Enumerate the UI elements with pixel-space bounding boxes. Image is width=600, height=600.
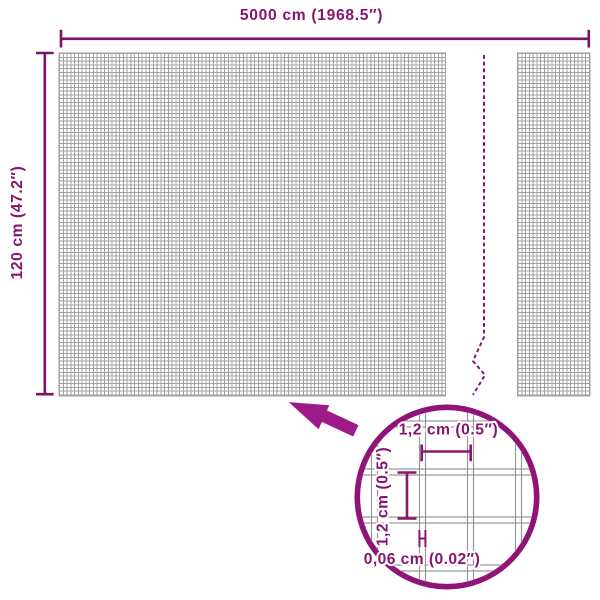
svg-text:5000 cm (1968.5″): 5000 cm (1968.5″) — [240, 7, 383, 24]
svg-text:0,06 cm (0.02″): 0,06 cm (0.02″) — [364, 551, 481, 568]
svg-text:1,2 cm (0.5″): 1,2 cm (0.5″) — [399, 422, 499, 439]
svg-text:120 cm (47.2″): 120 cm (47.2″) — [9, 166, 26, 280]
svg-text:1,2 cm (0.5″): 1,2 cm (0.5″) — [375, 447, 392, 547]
